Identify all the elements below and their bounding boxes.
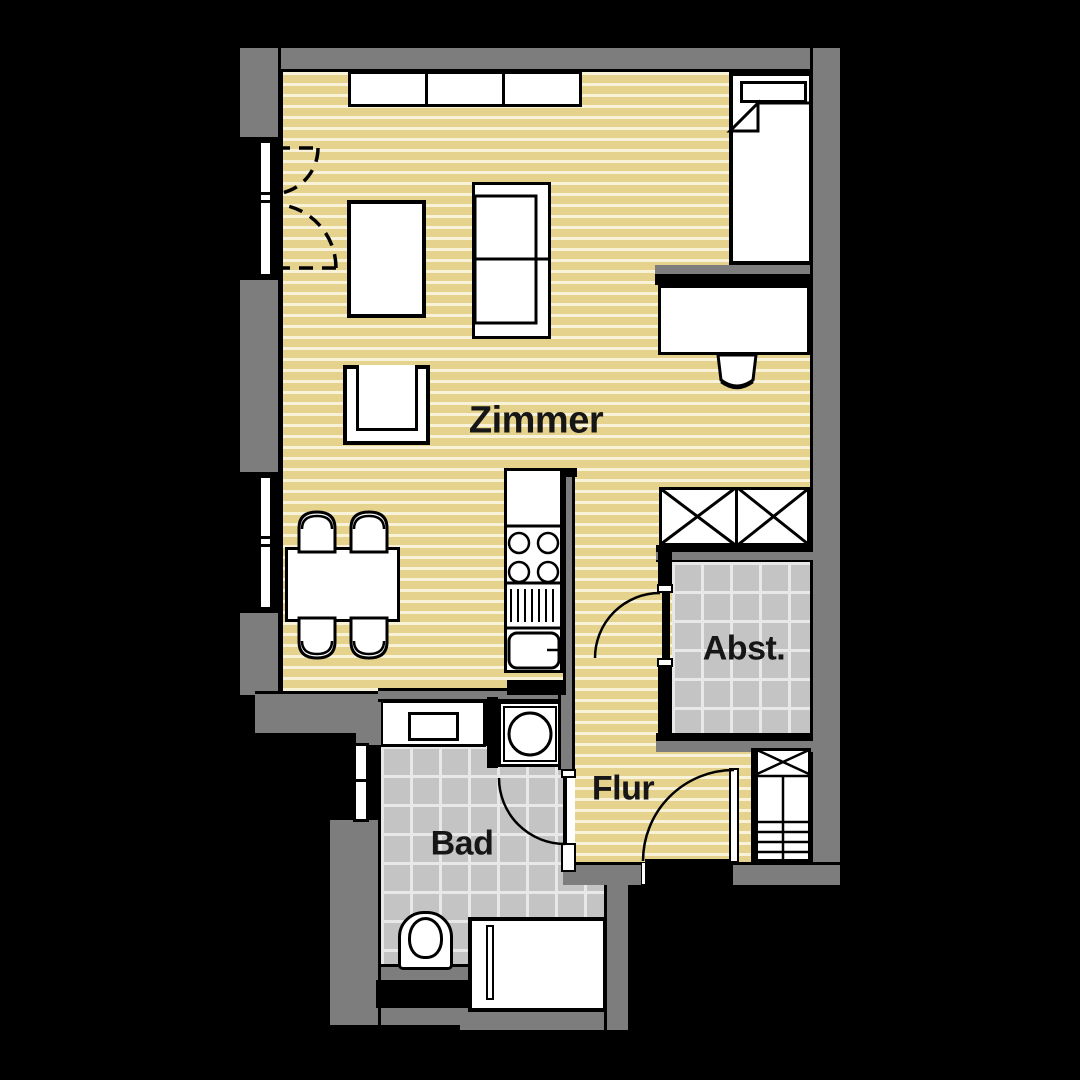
staircase-details (756, 750, 810, 860)
bad-door-arc (499, 778, 565, 844)
bed-fold (730, 103, 758, 131)
dining-chairs (299, 512, 387, 658)
floorplan: Zimmer Abst. Flur Bad (0, 0, 1080, 1080)
sofa-cushions (475, 196, 549, 323)
wardrobe-x (661, 489, 808, 544)
washing-machine-drum (509, 713, 551, 755)
entrance-door-arc (643, 770, 734, 861)
abst-door-arc (595, 593, 660, 658)
room-label-abst: Abst. (703, 630, 786, 669)
symbol-layer (0, 0, 1080, 1080)
french-door-swing (272, 148, 336, 268)
cooktop-burners (509, 533, 558, 582)
room-label-zimmer: Zimmer (469, 400, 603, 443)
desk-chair (718, 355, 756, 386)
room-label-flur: Flur (592, 770, 654, 809)
room-label-bad: Bad (431, 825, 494, 864)
dish-drainer (511, 589, 553, 622)
kitchen-details (504, 526, 563, 668)
